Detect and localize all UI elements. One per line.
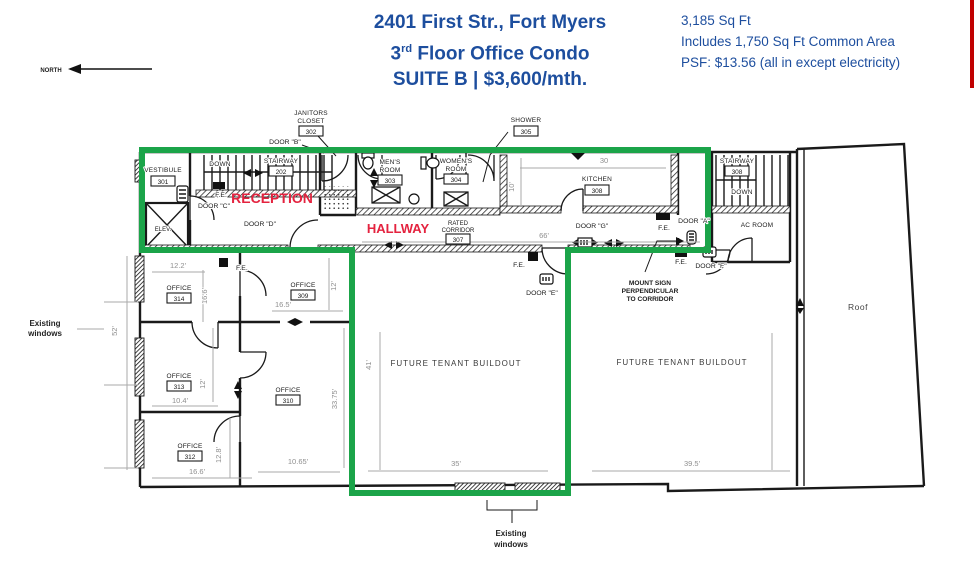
fe-label: F.E. (658, 225, 670, 232)
room-shower-number: 305 (521, 129, 532, 136)
dim-corridor-length: 66' (539, 231, 549, 240)
svg-text:ROOM: ROOM (379, 167, 400, 174)
room-womens: WOMEN'S (440, 158, 473, 165)
toilet-icon (421, 157, 439, 169)
room-office-313: OFFICE (166, 373, 191, 380)
room-office-312: OFFICE (177, 443, 202, 450)
door-d-label: DOOR "D" (244, 221, 277, 228)
room-kitchen: KITCHEN (582, 176, 612, 183)
fe-label: F.E. (513, 262, 525, 269)
fire-extinguisher-icon (656, 213, 670, 220)
svg-text:310: 310 (283, 398, 294, 405)
door-a-label: DOOR "A" (678, 218, 710, 225)
dim-office314-height: 16.6' (200, 287, 209, 304)
fe-label: F.E. (675, 259, 687, 266)
room-janitors-number: 302 (306, 129, 317, 136)
leader-lines (302, 132, 684, 523)
right-buildout-label: FUTURE TENANT BUILDOUT (616, 358, 747, 367)
room-office-314: OFFICE (166, 285, 191, 292)
dim-office312-height: 12.8' (214, 446, 223, 463)
svg-text:309: 309 (298, 293, 309, 300)
north-label: NORTH (40, 68, 61, 74)
svg-text:TO CORRIDOR: TO CORRIDOR (627, 296, 674, 303)
room-rated-corridor: RATED (448, 221, 469, 227)
dim-center-buildout-width: 35' (451, 459, 461, 468)
svg-text:CORRIDOR: CORRIDOR (442, 228, 475, 234)
svg-text:ROOM: ROOM (445, 166, 466, 173)
room-kitchen-number: 308 (592, 188, 603, 195)
dim-windows-height: 52' (110, 326, 119, 336)
stairway-right-down: DOWN (731, 189, 752, 196)
dim-office313-width: 10.4' (172, 396, 189, 405)
door-e-label: DOOR "E" (526, 290, 558, 297)
door-f-label: DOOR "F" (695, 263, 727, 270)
door-b-label: DOOR "B" (269, 139, 301, 146)
room-reception: RECEPTION (231, 190, 313, 206)
room-elevator: ELEV. (155, 227, 172, 233)
fire-extinguisher-icon (213, 182, 225, 189)
roof-label: Roof (848, 302, 868, 312)
dim-office309-width: 16.5' (275, 300, 292, 309)
svg-text:313: 313 (174, 384, 185, 391)
dim-kitchen-height: 10' (507, 182, 516, 192)
svg-text:PERPENDICULAR: PERPENDICULAR (622, 288, 679, 295)
dim-office309-height: 12' (329, 281, 338, 291)
dim-office313-height: 12' (198, 379, 207, 389)
door-c-label: DOOR "C" (198, 203, 231, 210)
dim-kitchen-width: 30 (600, 156, 608, 165)
toilet-icon (362, 153, 374, 169)
dim-center-buildout-height: 41' (364, 360, 373, 370)
svg-text:314: 314 (174, 296, 185, 303)
svg-text:CLOSET: CLOSET (297, 118, 324, 125)
svg-text:312: 312 (185, 454, 196, 461)
room-mens: MEN'S (379, 159, 400, 166)
existing-windows-left-label: Existing (29, 319, 60, 328)
room-womens-number: 304 (451, 177, 462, 184)
room-stairway-right-number: 308 (732, 169, 743, 176)
dim-office312-width: 16.6' (189, 467, 206, 476)
floor-plan-page: 2401 First Str., Fort Myers 3rd Floor Of… (0, 0, 974, 578)
dim-office310-width: 10.65' (288, 457, 309, 466)
room-mens-number: 303 (385, 178, 396, 185)
room-shower: SHOWER (511, 117, 542, 124)
room-stairway-left: STAIRWAY (264, 158, 299, 165)
dim-office310-height: 33.75' (330, 388, 339, 409)
svg-text:windows: windows (27, 329, 62, 338)
room-vestibule-number: 301 (158, 179, 169, 186)
fire-extinguisher-icon (528, 252, 538, 261)
floor-plan: NORTH (0, 0, 974, 578)
north-arrow: NORTH (40, 64, 152, 74)
stairway-left-down: DOWN (209, 161, 230, 168)
dimensions: 12.2' 16.6' 16.5' 12' 10.4' 12' 16.6' 12… (77, 156, 790, 478)
room-office-309: OFFICE (290, 282, 315, 289)
dim-right-buildout-width: 39.5' (684, 459, 701, 468)
fe-label: F.E. (236, 265, 248, 272)
center-buildout-label: FUTURE TENANT BUILDOUT (390, 359, 521, 368)
room-office-310: OFFICE (275, 387, 300, 394)
door-g-label: DOOR "G" (576, 223, 609, 230)
room-hallway: HALLWAY (367, 221, 430, 236)
room-janitors-closet: JANITORS (294, 110, 328, 117)
mount-sign-note: MOUNT SIGN (629, 280, 671, 287)
room-stairway-left-number: 202 (276, 169, 287, 176)
room-corridor-number: 307 (453, 237, 464, 244)
room-vestibule: VESTIBULE (144, 167, 182, 174)
existing-windows-bottom-label: Existing (495, 529, 526, 538)
svg-text:windows: windows (493, 540, 528, 549)
room-stairway-right: STAIRWAY (720, 158, 755, 165)
sink-icon (409, 194, 419, 204)
fe-label: F.E. (215, 192, 227, 199)
fire-extinguisher-icon (219, 258, 228, 267)
room-ac: AC ROOM (741, 222, 773, 229)
dim-office314-width: 12.2' (170, 261, 187, 270)
